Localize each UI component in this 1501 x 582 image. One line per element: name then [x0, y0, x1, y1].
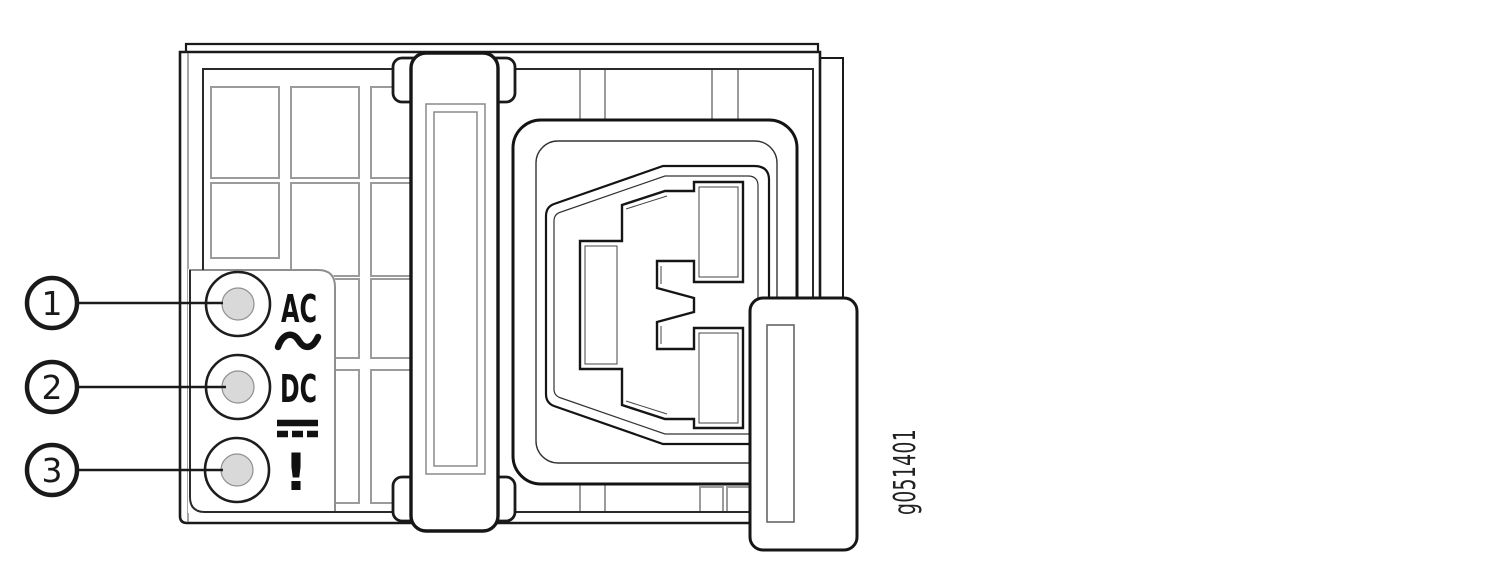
- latch-tab: [750, 298, 857, 550]
- led-ac-lens: [222, 288, 254, 320]
- psu-faceplate-diagram: AC DC ! 1: [0, 0, 1501, 582]
- callout-number-1: 1: [42, 284, 63, 323]
- led-alarm-lens: [221, 454, 253, 486]
- figure-id-label: g051401: [888, 429, 923, 515]
- psu-handle: [393, 53, 515, 531]
- dc-led-label: DC: [280, 367, 317, 411]
- ejector-latch: [750, 298, 857, 550]
- alarm-led-label: !: [284, 443, 308, 503]
- ac-led-label: AC: [281, 287, 317, 331]
- callout-number-2: 2: [42, 368, 63, 407]
- psu-diagram-canvas: AC DC ! 1: [0, 0, 1501, 582]
- led-dc-lens: [222, 371, 254, 403]
- callout-number-3: 3: [42, 451, 63, 490]
